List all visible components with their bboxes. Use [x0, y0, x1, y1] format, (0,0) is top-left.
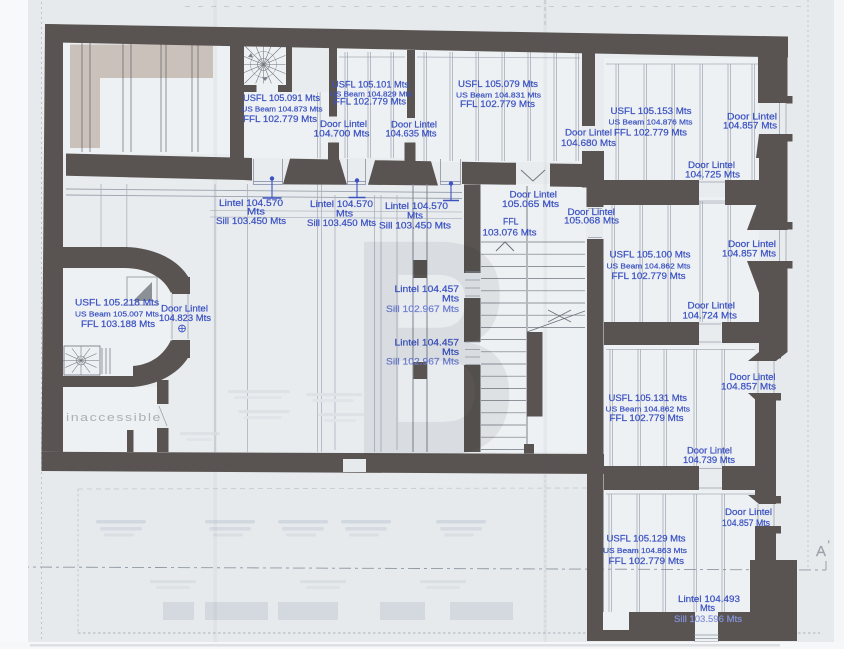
svg-text:Door Lintel: Door Lintel — [688, 301, 736, 311]
svg-text:104.857 Mts: 104.857 Mts — [722, 518, 770, 528]
svg-text:104.857 Mts: 104.857 Mts — [722, 248, 777, 258]
svg-text:Door Lintel: Door Lintel — [725, 507, 772, 517]
svg-text:FFL 102.779 Mts: FFL 102.779 Mts — [609, 556, 685, 566]
svg-text:USFL 105.129 Mts: USFL 105.129 Mts — [607, 533, 687, 543]
svg-text:105.068 Mts: 105.068 Mts — [564, 216, 620, 226]
svg-text:Door Lintel: Door Lintel — [161, 304, 208, 314]
svg-text:USFL 105.131 Mts: USFL 105.131 Mts — [609, 393, 688, 403]
svg-text:Sill 103.450 Mts: Sill 103.450 Mts — [216, 216, 287, 226]
svg-text:USFL 105.101 Mts: USFL 105.101 Mts — [332, 80, 410, 90]
svg-text:Door Lintel: Door Lintel — [687, 446, 732, 456]
svg-text:FFL 102.779 Mts: FFL 102.779 Mts — [334, 97, 407, 107]
svg-text:FFL 102.779 Mts: FFL 102.779 Mts — [243, 114, 318, 124]
svg-text:USFL 105.100 Mts: USFL 105.100 Mts — [610, 250, 692, 260]
svg-text:104.739 Mts: 104.739 Mts — [683, 455, 736, 465]
svg-text:US Beam 104.863 Mts: US Beam 104.863 Mts — [603, 546, 687, 555]
svg-text:FFL 102.779 Mts: FFL 102.779 Mts — [610, 413, 685, 423]
svg-text:Sill 103.596 Mts: Sill 103.596 Mts — [674, 614, 743, 624]
svg-text:US Beam 104.831 Mts: US Beam 104.831 Mts — [456, 90, 541, 99]
svg-text:inaccessible: inaccessible — [66, 412, 162, 424]
svg-text:104.857 Mts: 104.857 Mts — [721, 382, 777, 392]
svg-text:US Beam 104.876 Mts: US Beam 104.876 Mts — [609, 117, 693, 126]
svg-text:Mts: Mts — [700, 603, 716, 613]
svg-text:US Beam 105.007 Mts: US Beam 105.007 Mts — [75, 310, 159, 319]
svg-text:A: A — [816, 543, 826, 560]
svg-text:': ' — [828, 538, 830, 552]
svg-text:USFL 105.153 Mts: USFL 105.153 Mts — [611, 106, 693, 116]
svg-text:FFL 102.779 Mts: FFL 102.779 Mts — [460, 99, 536, 109]
svg-text:104.724 Mts: 104.724 Mts — [683, 310, 738, 320]
svg-text:104.635 Mts: 104.635 Mts — [386, 129, 438, 139]
svg-text:Mts: Mts — [247, 207, 266, 217]
svg-text:104.823 Mts: 104.823 Mts — [159, 313, 212, 323]
svg-text:B: B — [348, 174, 520, 521]
svg-text:FFL 102.779 Mts: FFL 102.779 Mts — [612, 271, 687, 281]
svg-text:104.700 Mts: 104.700 Mts — [314, 128, 371, 138]
svg-text:104.857 Mts: 104.857 Mts — [723, 120, 778, 130]
svg-text:USFL 105.218 Mts: USFL 105.218 Mts — [75, 298, 160, 308]
svg-text:Door Lintel: Door Lintel — [688, 160, 735, 170]
svg-text:USFL 105.091 Mts: USFL 105.091 Mts — [243, 93, 321, 103]
svg-text:Door Lintel: Door Lintel — [565, 128, 612, 138]
svg-text:FFL 103.188 Mts: FFL 103.188 Mts — [81, 319, 156, 329]
svg-text:US Beam 104.873 Mts: US Beam 104.873 Mts — [242, 105, 323, 114]
svg-text:104.680 Mts: 104.680 Mts — [561, 138, 617, 148]
svg-text:US Beam 104.862 Mts: US Beam 104.862 Mts — [606, 404, 691, 413]
svg-text:FFL 102.779 Mts: FFL 102.779 Mts — [614, 128, 688, 138]
svg-text:Door Lintel: Door Lintel — [730, 372, 776, 382]
svg-text:104.725 Mts: 104.725 Mts — [685, 170, 741, 180]
svg-text:USFL 105.079 Mts: USFL 105.079 Mts — [458, 79, 539, 89]
svg-text:US Beam 104.862 Mts: US Beam 104.862 Mts — [607, 261, 691, 270]
